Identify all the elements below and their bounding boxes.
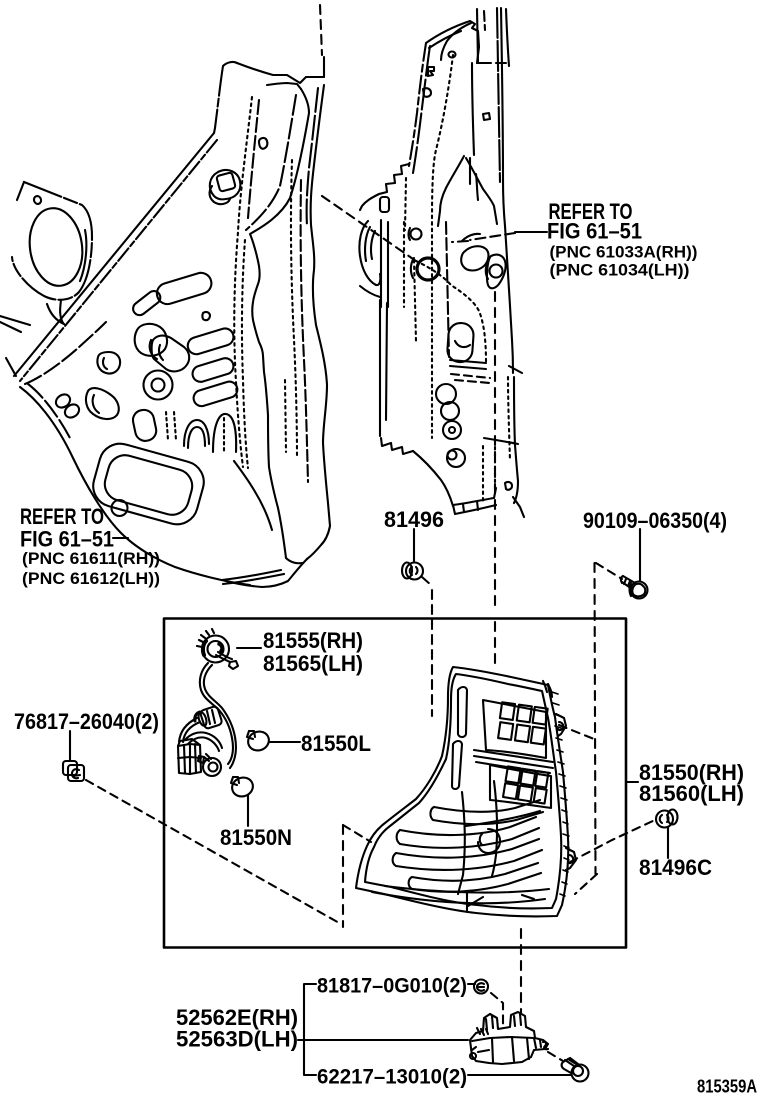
svg-text:FIG 61–51: FIG 61–51 <box>20 527 114 552</box>
svg-text:81550L: 81550L <box>301 731 371 756</box>
svg-text:62217–13010(2): 62217–13010(2) <box>317 1066 467 1089</box>
svg-text:815359A: 815359A <box>697 1077 757 1097</box>
svg-text:90109–06350(4): 90109–06350(4) <box>583 508 727 533</box>
svg-text:FIG 61–51: FIG 61–51 <box>547 219 642 244</box>
svg-text:81550N: 81550N <box>220 825 292 850</box>
svg-text:(PNC 61034(LH)): (PNC 61034(LH)) <box>550 261 690 280</box>
svg-text:81555(RH): 81555(RH) <box>263 628 363 653</box>
svg-text:(PNC 61611(RH)): (PNC 61611(RH)) <box>22 549 160 568</box>
svg-text:REFER TO: REFER TO <box>20 504 104 529</box>
svg-text:81496: 81496 <box>384 507 444 532</box>
svg-text:52563D(LH): 52563D(LH) <box>176 1027 298 1052</box>
svg-text:(PNC 61612(LH)): (PNC 61612(LH)) <box>22 569 160 588</box>
svg-text:81496C: 81496C <box>639 855 712 880</box>
svg-text:81817–0G010(2): 81817–0G010(2) <box>317 975 467 998</box>
svg-text:76817–26040(2): 76817–26040(2) <box>14 709 159 734</box>
svg-text:81560(LH): 81560(LH) <box>639 781 744 806</box>
svg-text:(PNC 61033A(RH)): (PNC 61033A(RH)) <box>550 243 698 262</box>
svg-text:81565(LH): 81565(LH) <box>263 651 363 676</box>
